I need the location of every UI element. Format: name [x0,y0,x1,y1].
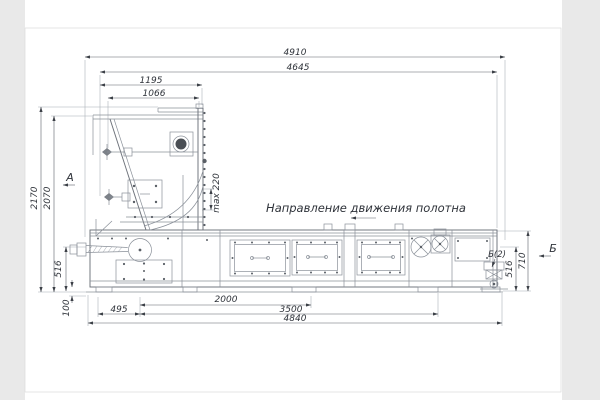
view-a-label: А [65,171,74,184]
view-b-label: Б [549,242,557,255]
dim-height-overall: 2170 [30,186,40,209]
dim-top-frame: 4645 [287,63,310,73]
technical-drawing: Направление движения полотна А Б Б(2) 49… [0,0,600,400]
dim-right-belt-height: 516 [505,260,515,277]
dim-gap-max: max 220 [212,173,222,213]
dim-bottom-overall: 4840 [284,314,307,324]
dim-hopper-inner: 1066 [143,89,166,99]
dim-bottom-495: 495 [110,305,127,315]
detail-b2-label: Б(2) [488,250,506,260]
page-margin-left [0,0,25,400]
dim-bottom-2000: 2000 [215,295,238,305]
drawing-page: Направление движения полотна А Б Б(2) 49… [0,0,600,400]
dim-right-frame-height: 710 [518,252,528,269]
dim-height-hopper: 2070 [43,186,53,209]
direction-note-text: Направление движения полотна [266,201,466,215]
dim-left-belt-height: 516 [54,260,64,277]
page-margin-right [562,0,600,400]
dim-hopper-outer: 1195 [140,76,163,86]
dim-top-overall: 4910 [284,48,307,58]
dim-base-height: 100 [62,299,72,316]
